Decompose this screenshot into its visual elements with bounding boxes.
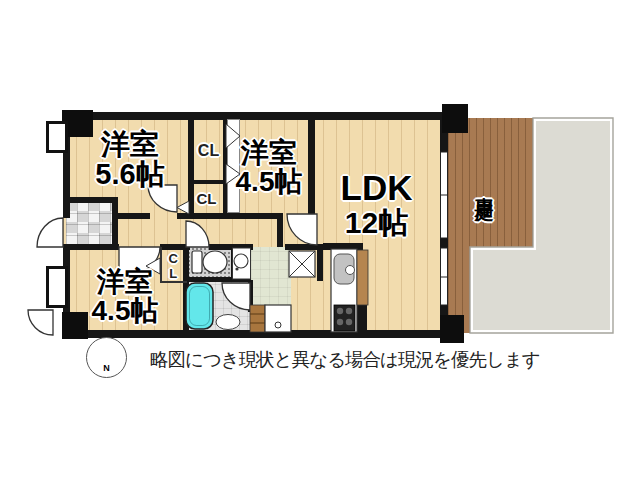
utility-door-arc [28,310,53,335]
bathroom-door-arc [222,283,250,310]
entrance-door-arc [37,218,63,247]
room3-size: 4.5帖 [66,296,184,325]
room2-name: 洋室 [226,138,312,167]
ldk-size: 12帖 [313,207,440,239]
ldk-label: LDK 12帖 [313,170,440,238]
window [441,152,448,305]
washer-pan-icon [289,251,315,277]
washbasin-icon [233,248,251,279]
washing-machine-icon [265,305,291,332]
garden-label: 専用庭 [474,150,494,220]
closet-label-bedroom: CL [166,250,180,282]
room1-name: 洋室 [70,129,190,159]
compass-north-label: N [86,363,127,373]
plan-overlay [0,0,640,480]
closet-label-upper: CL [190,143,227,160]
toilet-icon [192,251,227,273]
disclaimer-text: 略図につき現状と異なる場合は現況を優先します [150,347,540,372]
closet-label-lower: CL [188,191,225,207]
kitchen-icon [331,249,368,332]
room1-label: 洋室 5.6帖 [70,129,190,190]
room1-size: 5.6帖 [70,159,190,189]
stove-icon [334,305,355,331]
room2-label: 洋室 4.5帖 [226,138,312,197]
bathtub-icon [186,283,213,329]
ldk-name: LDK [313,170,440,207]
kitchen-counter [357,250,368,305]
floor-plan-page: 洋室 5.6帖 洋室 4.5帖 LDK 12帖 洋室 4.5帖 専用庭 CL C… [0,0,640,480]
shelf-icon [250,305,265,332]
toilet-door-arc [186,221,209,247]
bath-counter-icon [216,315,240,330]
room2-size: 4.5帖 [226,167,312,196]
faucet-icon [346,266,355,275]
